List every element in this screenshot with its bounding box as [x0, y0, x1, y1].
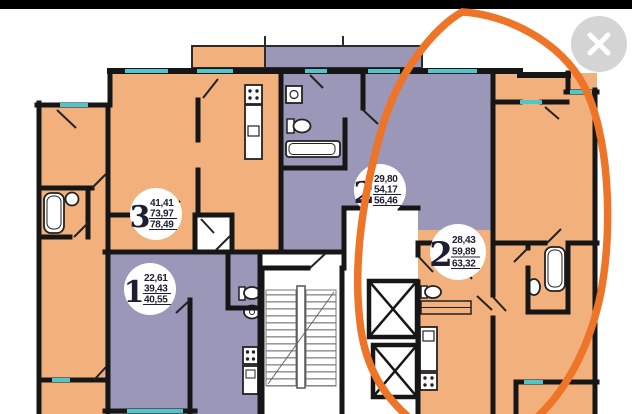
apt-3-left-wing: [37, 103, 110, 414]
stove-icon: [420, 373, 437, 390]
toilet-icon: [425, 286, 441, 298]
close-icon: [584, 29, 614, 59]
apt-2-top-area-main: 54,17: [374, 185, 398, 196]
apt-2-top-area-total: 56,46: [374, 196, 398, 207]
apt-2-top-area-living: 29,80: [374, 174, 398, 185]
vestibule: [195, 215, 232, 252]
apt-2-right-area-main: 59,89: [452, 247, 476, 258]
floor-plan: 3 41,41 73,97 78,49 1 22,61 39,43 40,55 …: [0, 0, 632, 414]
toilet-icon: [294, 120, 311, 133]
apt-1-number: 1: [124, 275, 145, 310]
staircase: [266, 286, 336, 388]
apt-3-number: 3: [130, 200, 151, 235]
apt-3-area-living: 41,41: [150, 198, 174, 209]
apt-2-right-number: 2: [429, 235, 453, 275]
top-balcony-strip: [192, 36, 422, 68]
apt-2-right-area-living: 28,43: [452, 235, 476, 246]
apt-1-area-living: 22,61: [144, 273, 168, 284]
stove-icon: [243, 347, 258, 364]
image-viewer: 3 41,41 73,97 78,49 1 22,61 39,43 40,55 …: [0, 0, 632, 414]
apt-2-right-area-total: 63,32: [452, 259, 476, 270]
apt-1-area-main: 39,43: [144, 284, 168, 295]
close-button[interactable]: [571, 16, 627, 72]
apt-3-area-main: 73,97: [150, 209, 174, 220]
stove-icon: [245, 85, 262, 104]
apt-3-area-total: 78,49: [150, 220, 174, 231]
sink-icon: [66, 193, 79, 206]
apt-1-area-total: 40,55: [144, 295, 168, 306]
